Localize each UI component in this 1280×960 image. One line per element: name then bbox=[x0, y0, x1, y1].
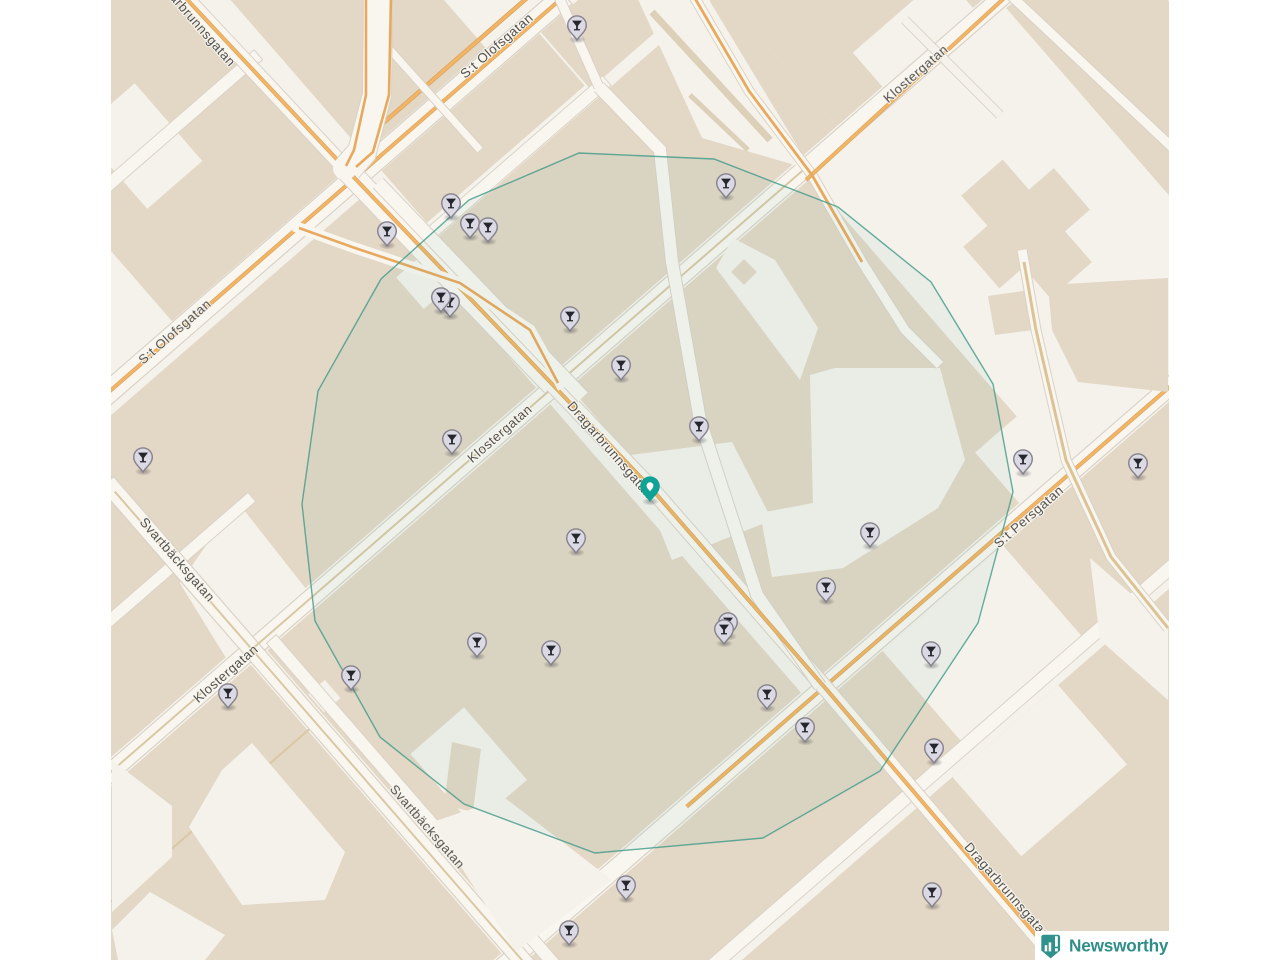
svg-text:Newsworthy: Newsworthy bbox=[1069, 936, 1169, 956]
